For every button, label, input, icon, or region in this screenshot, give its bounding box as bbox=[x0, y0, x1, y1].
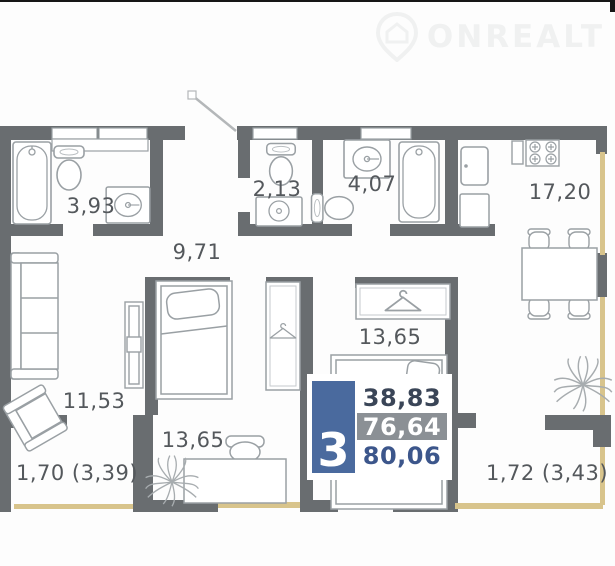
toilet-icon bbox=[312, 194, 354, 223]
bed-icon bbox=[156, 281, 232, 399]
label-hallway: 9,71 bbox=[173, 240, 222, 264]
kitchen-cabinet bbox=[460, 194, 489, 227]
armchair-icon bbox=[2, 384, 68, 452]
label-kitchen: 17,20 bbox=[529, 180, 592, 204]
bathtub-icon bbox=[399, 142, 439, 222]
area-rows: 38,83 76,64 80,06 bbox=[357, 383, 447, 471]
label-balcony-left: 1,70 (3,39) bbox=[16, 461, 138, 485]
label-balcony-right: 1,72 (3,43) bbox=[486, 461, 608, 485]
bathtub-icon bbox=[13, 142, 51, 224]
label-living: 11,53 bbox=[63, 389, 126, 413]
label-bathroom-small: 3,93 bbox=[67, 194, 116, 218]
fridge-icon bbox=[461, 147, 488, 185]
walls bbox=[0, 126, 611, 512]
tv-stand-icon bbox=[125, 302, 143, 388]
entry-door-swing-icon bbox=[188, 91, 236, 131]
dining-table-icon bbox=[522, 229, 597, 319]
label-bedroom-left: 13,65 bbox=[162, 428, 225, 452]
stove-icon bbox=[512, 140, 559, 166]
rooms-count-badge: 3 bbox=[312, 381, 355, 473]
total-area-value: 80,06 bbox=[357, 441, 447, 471]
apartment-area-value: 76,64 bbox=[357, 413, 447, 440]
sofa-icon bbox=[11, 253, 58, 379]
wardrobe-icon bbox=[266, 282, 300, 390]
wardrobe-icon bbox=[356, 284, 450, 319]
label-bedroom-right: 13,65 bbox=[359, 325, 422, 349]
apartment-stats-block: 3 38,83 76,64 80,06 bbox=[310, 377, 449, 477]
living-area-value: 38,83 bbox=[357, 383, 447, 412]
label-bathroom-large: 4,07 bbox=[348, 172, 397, 196]
sink-icon bbox=[256, 197, 302, 226]
floor-plan-canvas: ONREALT bbox=[0, 0, 615, 566]
toilet-icon bbox=[54, 146, 84, 190]
label-wc: 2,13 bbox=[253, 177, 302, 201]
